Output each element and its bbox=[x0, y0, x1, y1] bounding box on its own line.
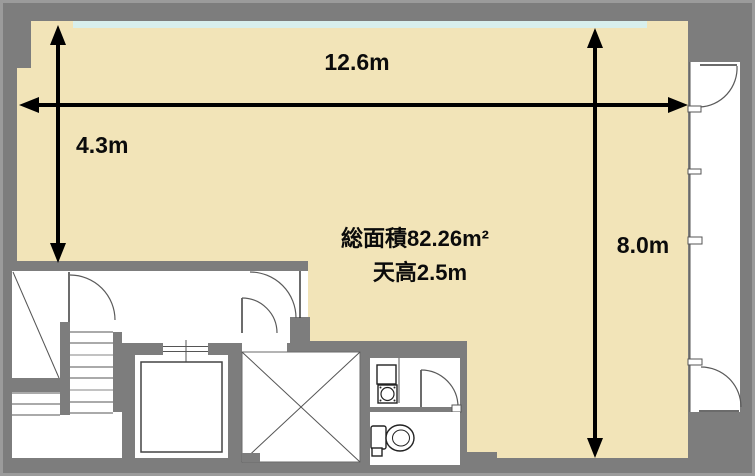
label-width: 12.6m bbox=[324, 49, 389, 75]
toilet-room bbox=[370, 412, 460, 465]
elevator bbox=[122, 340, 242, 458]
hallway bbox=[122, 271, 310, 352]
elevator-car bbox=[141, 362, 222, 452]
floor-plan: 12.6m 4.3m 8.0m 総面積82.26m² 天高2.5m bbox=[0, 0, 755, 476]
elevator-shaft bbox=[242, 352, 360, 462]
staircase-room bbox=[12, 271, 125, 458]
entrance-corridor bbox=[688, 62, 741, 412]
label-height-left: 4.3m bbox=[76, 132, 128, 158]
sink bbox=[377, 365, 396, 384]
window-band bbox=[73, 21, 647, 28]
stove bbox=[378, 385, 397, 403]
label-ceiling: 天高2.5m bbox=[373, 260, 467, 285]
label-area: 総面積82.26m² bbox=[341, 226, 489, 251]
label-height-right: 8.0m bbox=[617, 232, 669, 258]
kitchenette bbox=[370, 358, 461, 412]
